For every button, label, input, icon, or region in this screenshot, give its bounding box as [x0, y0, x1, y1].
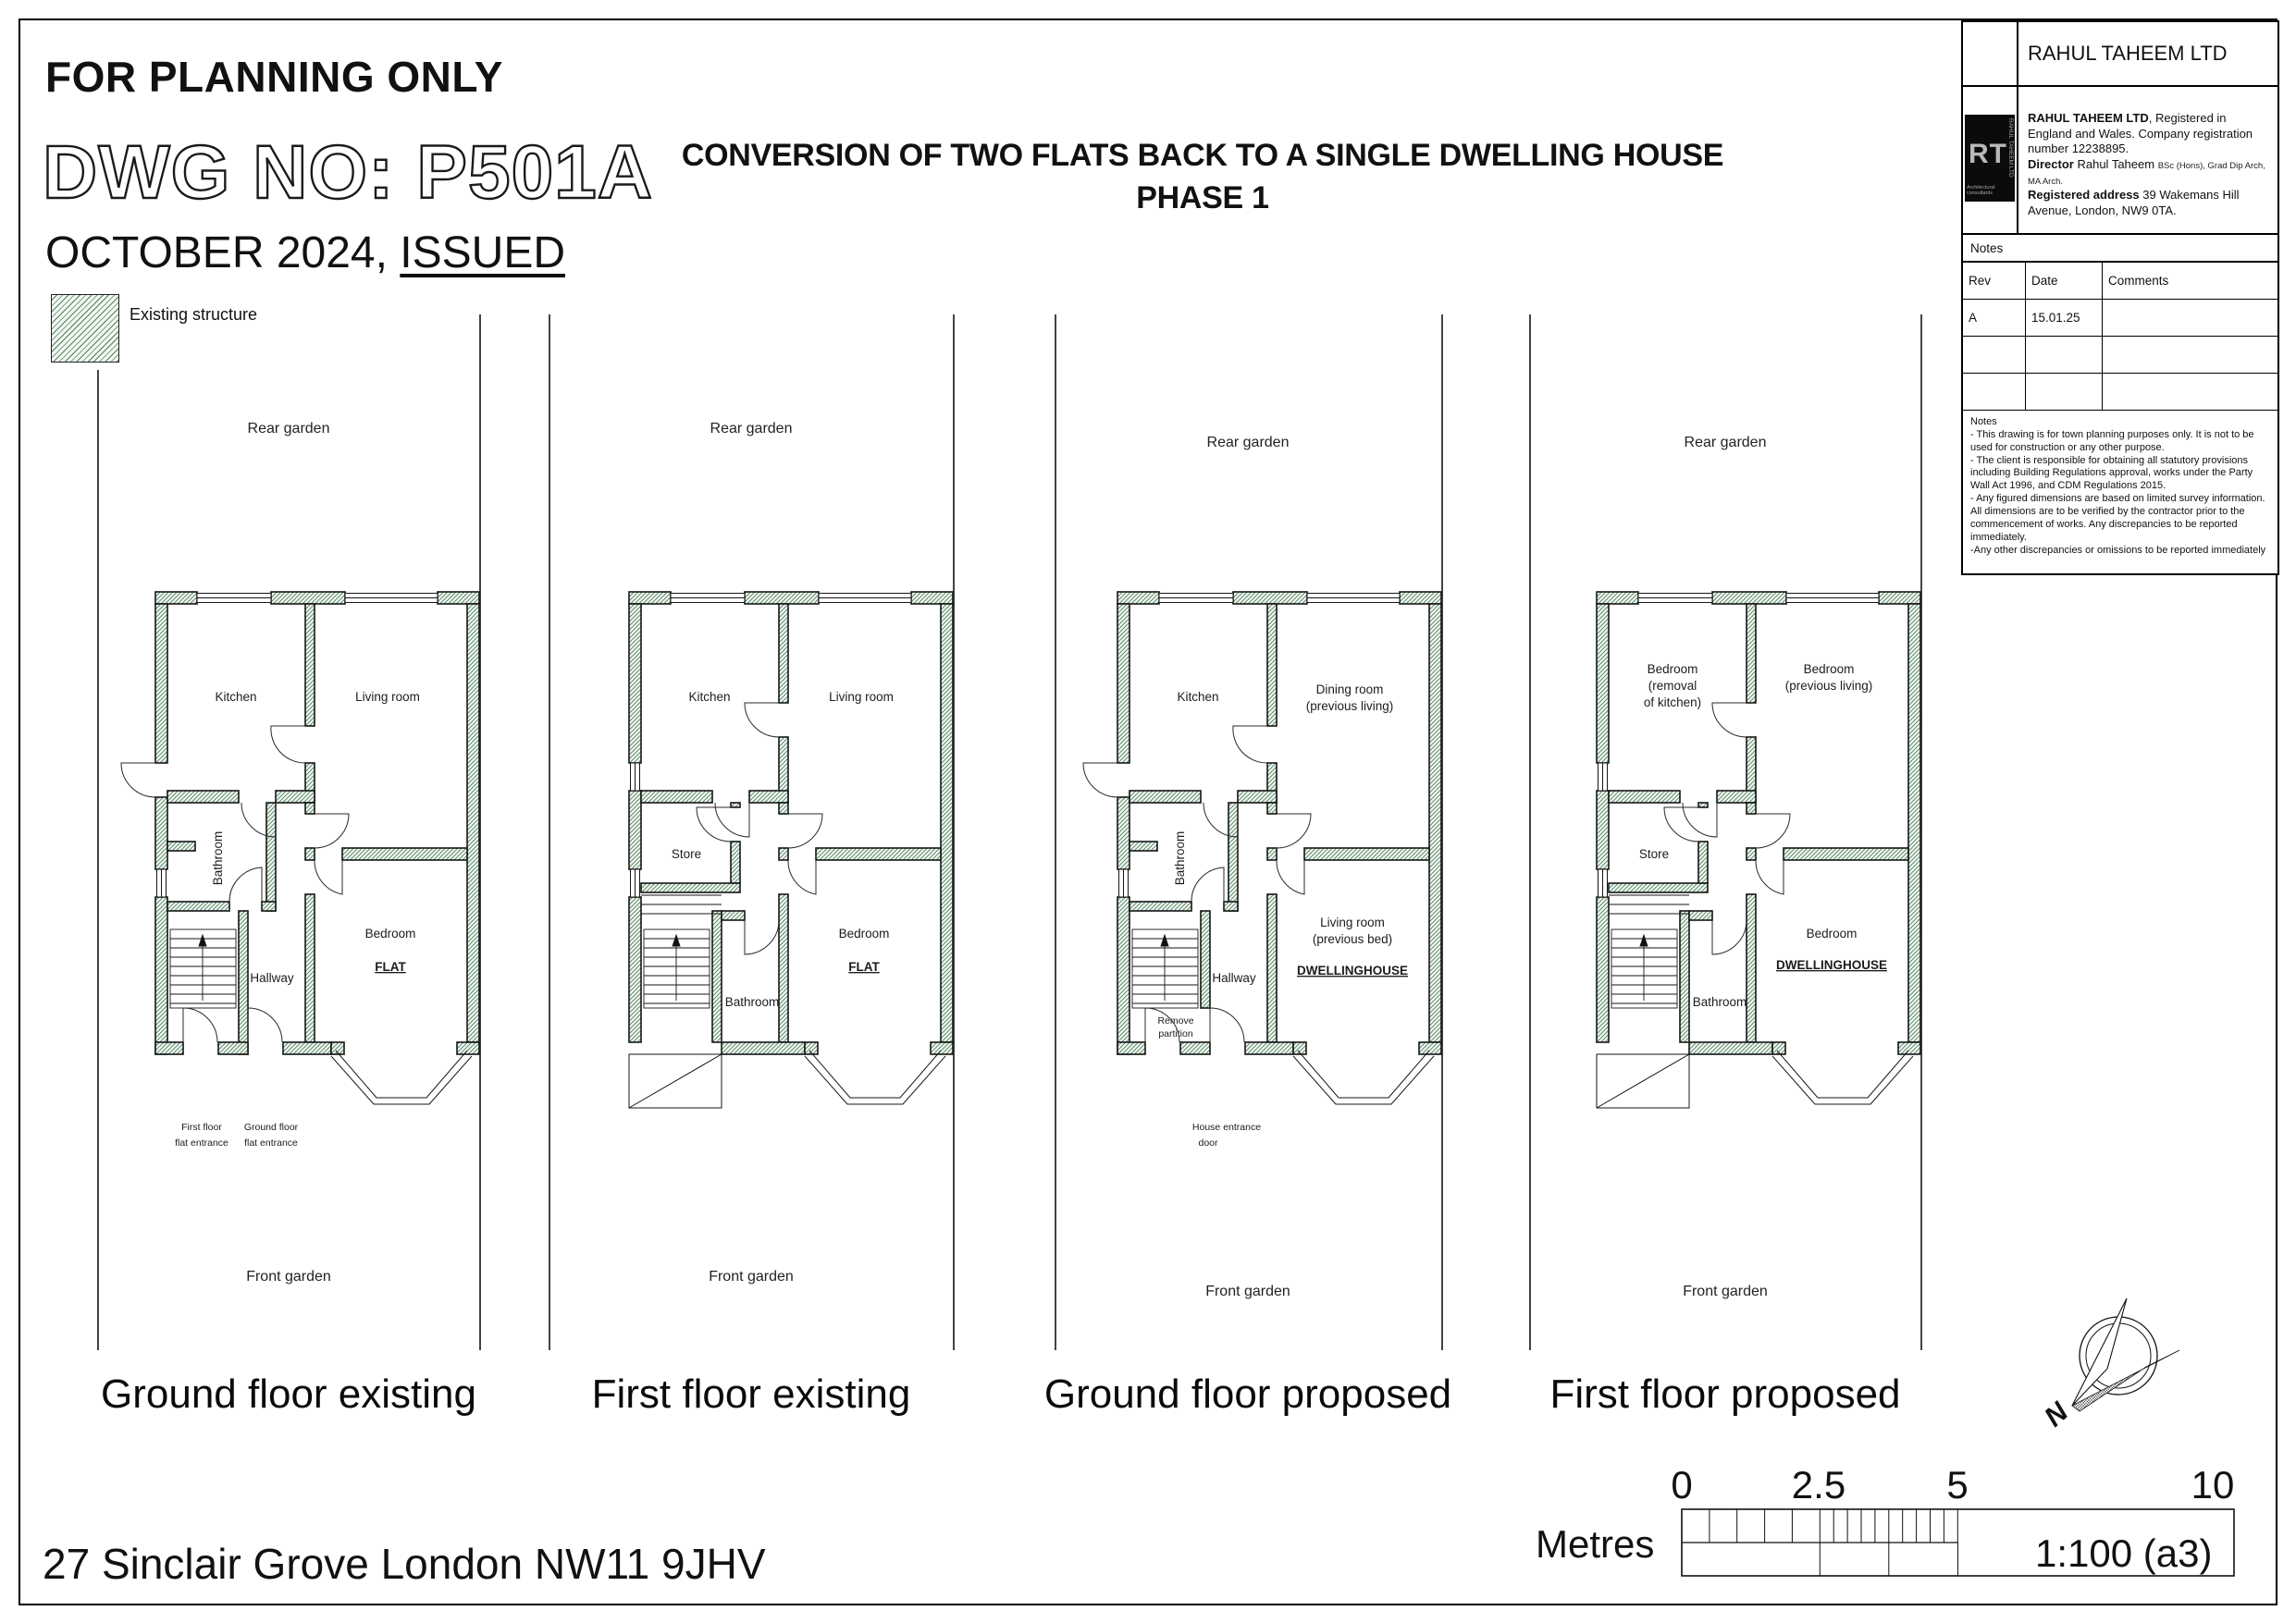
front-garden-label: Front garden [1109, 1284, 1387, 1300]
dwellinghouse-tag: DWELLINGHOUSE [1776, 958, 1887, 972]
bathroom-label: Bathroom [725, 995, 780, 1009]
flat-tag: FLAT [375, 960, 406, 974]
drawing-title-line1: CONVERSION OF TWO FLATS BACK TO A SINGLE… [638, 135, 1767, 178]
boundary-line [1529, 314, 1531, 1350]
title-block-header-spacer [1963, 22, 2018, 85]
title-block: RAHUL TAHEEM LTD RT Architectural consul… [1961, 20, 2279, 575]
logo-cell: RT Architectural consultants RAHUL TAHEE… [1963, 87, 2018, 233]
scale-tick-0: 0 [1671, 1463, 1692, 1506]
plan-first-floor-proposed: Bedroom (removal of kitchen) Bedroom (pr… [1550, 564, 1939, 1174]
bedroom3-label: Bedroom [1807, 927, 1858, 941]
site-address: 27 Sinclair Grove London NW11 9JHV [43, 1539, 766, 1589]
revision-row [1963, 374, 2277, 411]
first-floor-entrance-label: First floor [181, 1122, 222, 1133]
date-value: 15.01.25 [2026, 300, 2103, 337]
roof-below [629, 1054, 722, 1108]
front-garden-label: Front garden [1586, 1284, 1864, 1300]
date-text: OCTOBER 2024, [45, 228, 400, 277]
existing-structure-label: Existing structure [130, 305, 257, 325]
title-block-header-row: RAHUL TAHEEM LTD [1963, 22, 2277, 87]
company-info: RAHUL TAHEEM LTD, Registered in England … [2018, 87, 2277, 233]
bedroom-label: Bedroom [839, 927, 890, 941]
scale-tick-labels: 0 2.5 5 10 [1671, 1463, 2234, 1506]
bedroom-label: Bedroom [365, 927, 416, 941]
kitchen-label: Kitchen [215, 690, 256, 704]
stairs [1609, 895, 1689, 1008]
room-labels: Kitchen Living room Bathroom Hallway Bed… [175, 690, 420, 1149]
bay-window [805, 1051, 945, 1104]
drawing-title: CONVERSION OF TWO FLATS BACK TO A SINGLE… [638, 135, 1767, 220]
stairs [1132, 929, 1198, 1008]
scale-tick-10: 10 [2191, 1463, 2235, 1506]
house-entrance-door-label: House entrance [1192, 1122, 1261, 1133]
bay-window [331, 1051, 472, 1104]
dining-room-label2: (previous living) [1306, 699, 1394, 713]
ground-floor-entrance-label2: flat entrance [244, 1137, 298, 1149]
title-block-info-row: RT Architectural consultants RAHUL TAHEE… [1963, 87, 2277, 235]
front-garden-label: Front garden [150, 1269, 427, 1285]
comments-col-header: Comments [2103, 263, 2278, 300]
rev-value: A [1963, 300, 2026, 337]
north-arrow: N [2033, 1284, 2195, 1445]
scale-tick-2-5: 2.5 [1792, 1463, 1845, 1506]
revision-table: Rev Date Comments A 15.01.25 [1963, 263, 2277, 411]
comments-value [2103, 374, 2278, 411]
kitchen-label: Kitchen [1177, 690, 1218, 704]
boundary-line [97, 370, 99, 1350]
boundary-line [549, 314, 550, 1350]
issued-text: ISSUED [400, 228, 565, 277]
rev-value [1963, 337, 2026, 374]
caption-first-floor-existing: First floor existing [511, 1371, 992, 1418]
store-label: Store [1639, 847, 1669, 861]
ground-floor-entrance-label: Ground floor [244, 1122, 299, 1133]
dwellinghouse-tag: DWELLINGHOUSE [1297, 964, 1408, 977]
front-garden-label: Front garden [612, 1269, 890, 1285]
house-entrance-door-label2: door [1198, 1137, 1218, 1149]
comments-value [2103, 337, 2278, 374]
stairs [170, 929, 236, 1008]
drawing-title-line2: PHASE 1 [638, 178, 1767, 220]
remove-partition-label: Remove [1157, 1015, 1193, 1027]
rear-garden-label: Rear garden [1109, 435, 1387, 451]
caption-ground-floor-proposed: Ground floor proposed [1007, 1371, 1488, 1418]
living-room-label: Living room [355, 690, 420, 704]
date-issued-line: OCTOBER 2024, ISSUED [45, 227, 565, 278]
dwg-number-text: DWG NO: P501A [43, 130, 653, 215]
bedroom2-label: Bedroom [1804, 662, 1855, 676]
first-floor-entrance-label2: flat entrance [175, 1137, 228, 1149]
room-labels: Kitchen Dining room (previous living) Ba… [1157, 682, 1408, 1149]
caption-first-floor-proposed: First floor proposed [1485, 1371, 1966, 1418]
date-value [2026, 337, 2103, 374]
company-info-director-label: Director [2028, 157, 2074, 171]
north-label: N [2039, 1396, 2075, 1432]
remove-partition-label2: partition [1158, 1028, 1193, 1039]
flat-tag: FLAT [848, 960, 880, 974]
bathroom-label: Bathroom [211, 831, 225, 886]
logo-subtitle: Architectural consultants [1967, 185, 2015, 196]
logo-rt-text: RT [1969, 139, 2007, 170]
existing-structure-swatch [51, 294, 119, 363]
living-room-label: Living room [829, 690, 894, 704]
comments-value [2103, 300, 2278, 337]
disclaimer-note: - The client is responsible for obtainin… [1970, 455, 2270, 494]
rear-garden-label: Rear garden [612, 421, 890, 437]
bathroom-label: Bathroom [1693, 995, 1747, 1009]
disclaimer-notes: Notes - This drawing is for town plannin… [1963, 411, 2277, 562]
scale-bar: 0 2.5 5 10 Metres 1:100 (a3) [1517, 1454, 2257, 1606]
stairs [641, 895, 722, 1008]
scale-tick-5: 5 [1946, 1463, 1968, 1506]
disclaimer-note: - Any figured dimensions are based on li… [1970, 493, 2270, 544]
plan-ground-floor-existing: Kitchen Living room Bathroom Hallway Bed… [109, 564, 498, 1174]
hallway-label: Hallway [250, 971, 294, 985]
rear-garden-label: Rear garden [150, 421, 427, 437]
bathroom-label: Bathroom [1173, 831, 1187, 886]
scale-unit-label: Metres [1536, 1522, 1654, 1566]
company-info-address-label: Registered address [2028, 188, 2140, 202]
revision-header-row: Rev Date Comments [1963, 263, 2277, 300]
plan-ground-floor-proposed: Kitchen Dining room (previous living) Ba… [1071, 564, 1460, 1174]
rear-garden-label: Rear garden [1586, 435, 1864, 451]
bay-window [1772, 1051, 1913, 1104]
company-info-director: Rahul Taheem [2074, 157, 2158, 171]
date-col-header: Date [2026, 263, 2103, 300]
hallway-label: Hallway [1212, 971, 1256, 985]
bay-window [1293, 1051, 1434, 1104]
roof-below [1597, 1054, 1689, 1108]
dining-room-label: Dining room [1316, 682, 1384, 696]
company-name: RAHUL TAHEEM LTD [2018, 22, 2277, 85]
disclaimer-note: -Any other discrepancies or omissions to… [1970, 545, 2270, 558]
living-room-label: Living room [1320, 916, 1385, 929]
bedroom1-label: Bedroom [1648, 662, 1698, 676]
bedroom2-label2: (previous living) [1785, 679, 1873, 693]
bedroom1-label3: of kitchen) [1644, 695, 1701, 709]
rev-value [1963, 374, 2026, 411]
logo-side-text: RAHUL TAHEEM LTD [2007, 118, 2014, 178]
caption-ground-floor-existing: Ground floor existing [48, 1371, 529, 1418]
living-room-label2: (previous bed) [1313, 932, 1392, 946]
plan-first-floor-existing: Kitchen Living room Store Bathroom Bedro… [583, 564, 971, 1174]
revision-row [1963, 337, 2277, 374]
kitchen-label: Kitchen [688, 690, 730, 704]
boundary-line [1055, 314, 1056, 1350]
notes-row-label: Notes [1963, 235, 2277, 263]
company-info-name: RAHUL TAHEEM LTD [2028, 111, 2149, 125]
store-label: Store [672, 847, 701, 861]
disclaimer-note: - This drawing is for town planning purp… [1970, 429, 2270, 455]
disclaimer-notes-title: Notes [1970, 416, 2270, 429]
for-planning-only-label: FOR PLANNING ONLY [45, 52, 503, 102]
scale-ratio-label: 1:100 (a3) [2035, 1531, 2212, 1575]
rev-col-header: Rev [1963, 263, 2026, 300]
company-logo: RT Architectural consultants RAHUL TAHEE… [1965, 115, 2015, 202]
date-value [2026, 374, 2103, 411]
revision-row: A 15.01.25 [1963, 300, 2277, 337]
bedroom1-label2: (removal [1648, 679, 1697, 693]
